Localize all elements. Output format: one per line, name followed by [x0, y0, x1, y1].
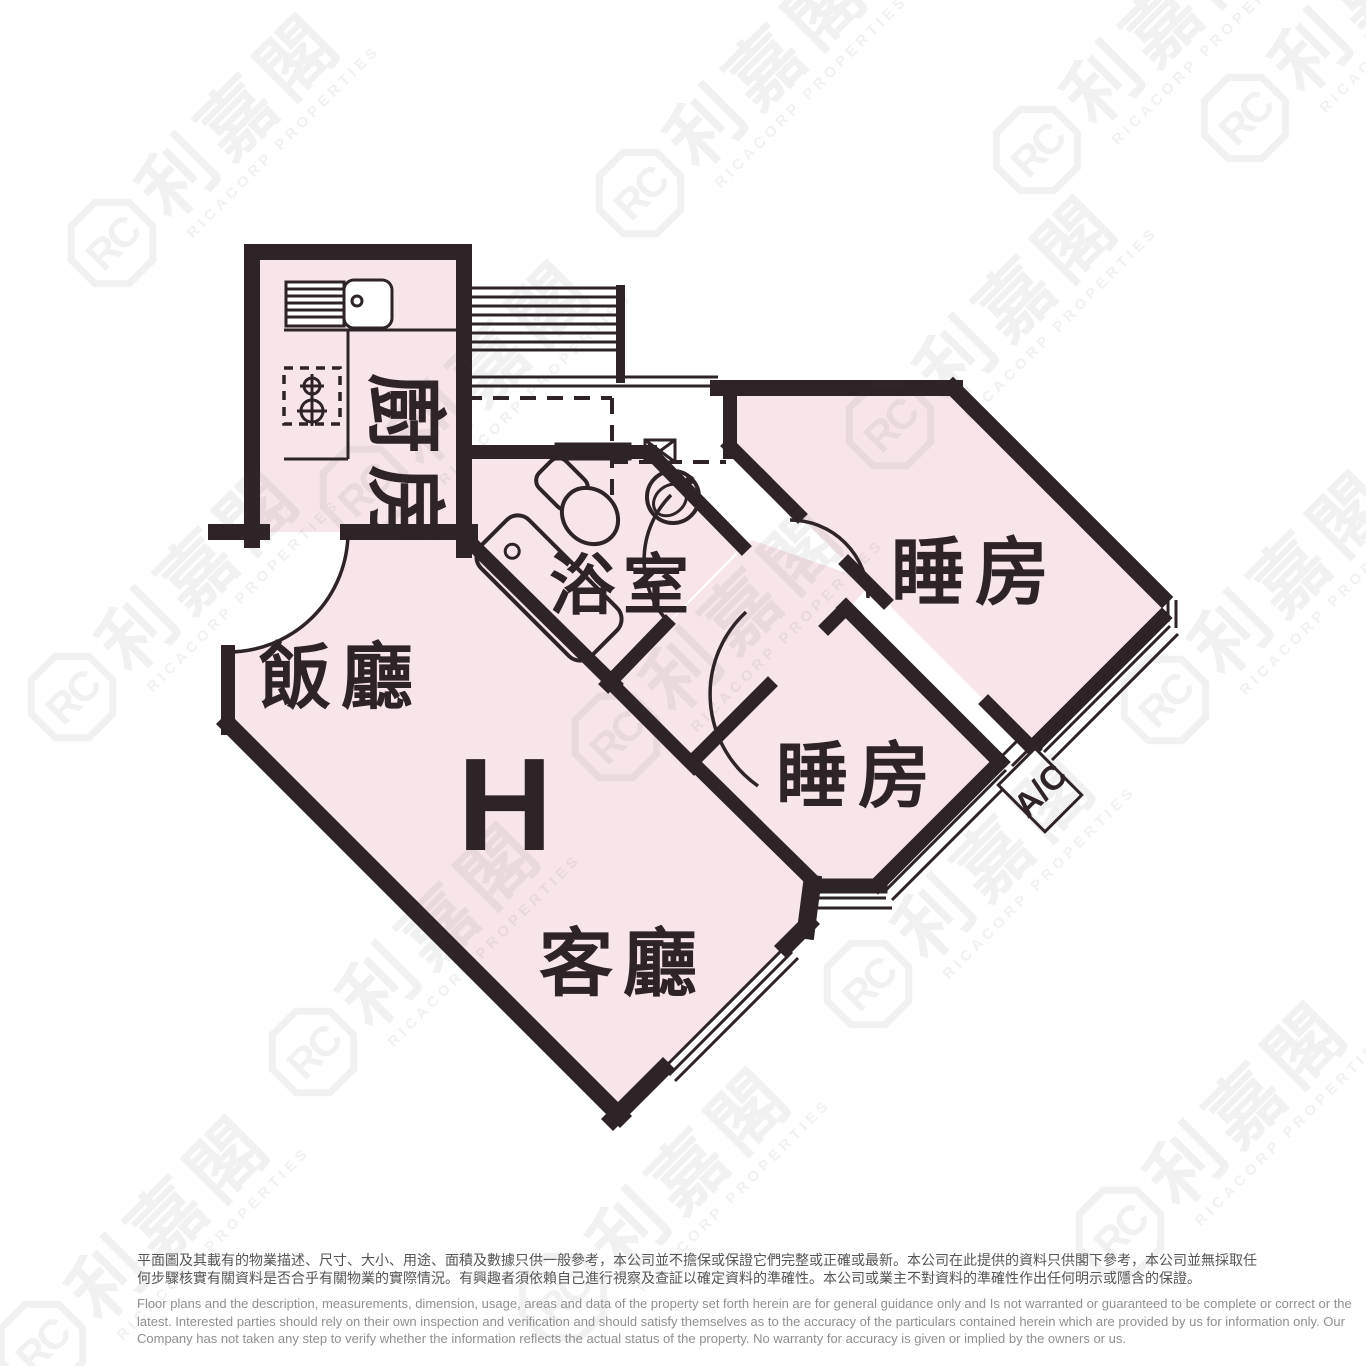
- disclaimer-en-line2: latest. Interested parties should rely o…: [137, 1313, 1357, 1331]
- floorplan-page: { "floorplan": { "unit_label": "H", "lab…: [0, 0, 1366, 1366]
- disclaimer-block: 平面圖及其載有的物業描述、尺寸、大小、用途、面積及數據只供一般參考，本公司並不擔…: [137, 1251, 1357, 1348]
- disclaimer-en-line1: Floor plans and the description, measure…: [137, 1295, 1357, 1313]
- bathroom-label: 浴室: [549, 548, 697, 622]
- sink-basin: [344, 280, 392, 328]
- bedroom-top-label: 睡房: [891, 531, 1059, 614]
- disclaimer-zh-line1: 平面圖及其載有的物業描述、尺寸、大小、用途、面積及數據只供一般參考，本公司並不擔…: [137, 1251, 1357, 1269]
- disclaimer-zh-line2: 何步驟核實有關資料是否合乎有關物業的實際情況。有興趣者須依賴自己進行視察及查証以…: [137, 1269, 1357, 1287]
- disclaimer-en-line3: Company has not taken any step to verify…: [137, 1330, 1357, 1348]
- floorplan-canvas: RC 利嘉閣 RICACORP PROPERTIES: [0, 0, 1366, 1366]
- watermark-pattern: [0, 0, 1366, 1366]
- bedroom-mid-label: 睡房: [776, 737, 940, 817]
- dining-label: 飯廳: [259, 638, 423, 718]
- living-label: 客廳: [539, 922, 707, 1005]
